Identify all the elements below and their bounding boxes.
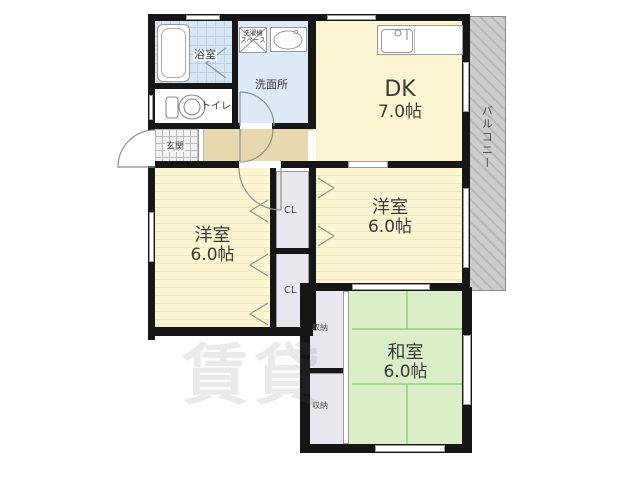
wall: [270, 248, 316, 254]
label-entrance: 玄関: [165, 142, 185, 152]
wall: [148, 123, 313, 129]
label-washroom: 洗面所: [255, 79, 288, 91]
label-closet-top: CL: [284, 205, 297, 216]
window: [327, 15, 376, 20]
bathtub-icon: [157, 24, 190, 82]
western1-name: 洋室: [155, 226, 270, 246]
room-label-western1: 洋室 6.0帖: [155, 226, 270, 265]
balcony-door: [463, 62, 469, 112]
label-toilet: トイレ: [201, 101, 231, 112]
dk-name: DK: [340, 78, 460, 103]
japanese-name: 和室: [348, 343, 463, 363]
label-washer-space: 洗濯機 スペース: [239, 30, 267, 45]
sliding-door: [348, 161, 388, 168]
window: [463, 335, 471, 405]
washbasin-icon: [270, 27, 307, 52]
entrance-door-opening: [148, 130, 155, 166]
room-label-dk: DK 7.0帖: [340, 78, 460, 122]
window: [149, 95, 153, 120]
sliding-door: [352, 284, 430, 290]
western1-size: 6.0帖: [155, 246, 270, 265]
doorway: [239, 161, 281, 168]
wall: [308, 14, 316, 129]
label-bathroom: 浴室: [193, 49, 217, 61]
label-closet-bottom: CL: [284, 285, 297, 296]
window: [375, 445, 445, 452]
western2-size: 6.0帖: [330, 218, 450, 237]
room-label-japanese: 和室 6.0帖: [348, 343, 463, 382]
doorway: [240, 123, 272, 129]
doorway: [308, 131, 316, 161]
wall: [148, 14, 155, 340]
window: [186, 15, 220, 20]
kitchen-counter: [377, 25, 463, 55]
western2-name: 洋室: [330, 198, 450, 218]
watermark-text: 賃貸: [182, 322, 326, 418]
room-label-western2: 洋室 6.0帖: [330, 198, 450, 237]
window: [149, 212, 154, 262]
window: [463, 188, 469, 268]
japanese-size: 6.0帖: [348, 363, 463, 382]
wall: [232, 14, 238, 129]
label-balcony: バルコニー: [480, 105, 492, 170]
dk-size: 7.0帖: [340, 103, 460, 122]
kitchen-sink-icon: [381, 29, 413, 53]
washer-line2: スペース: [239, 37, 267, 44]
wall: [148, 83, 238, 89]
floor-plan: DK 7.0帖 洋室 6.0帖 洋室 6.0帖 和室 6.0帖 浴室 洗面所 ト…: [0, 0, 640, 480]
